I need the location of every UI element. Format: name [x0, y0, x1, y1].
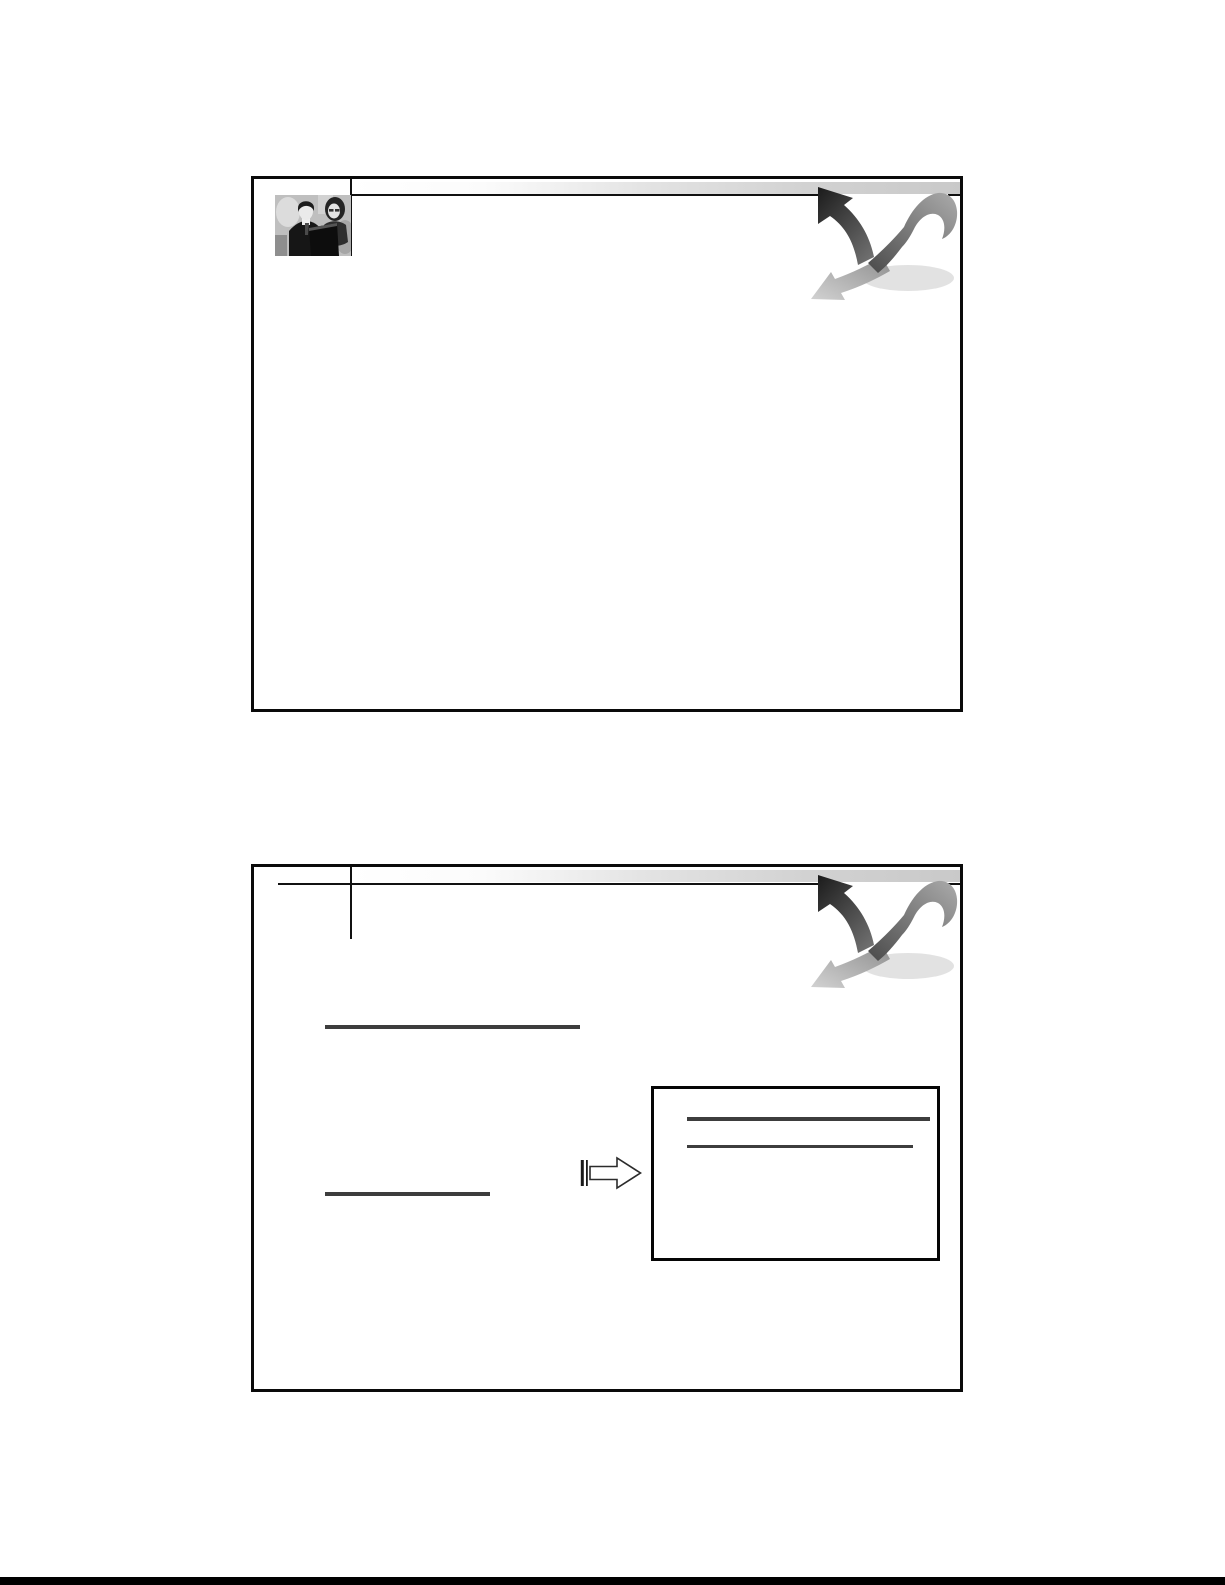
page-bottom-edge-strip [0, 1577, 1225, 1585]
block-arrow-right-icon [580, 1155, 643, 1191]
ribbon-arrows-graphic [808, 869, 958, 999]
header-rule-main [350, 883, 828, 885]
slide-frame-2 [251, 864, 963, 1392]
ribbon-arrows-graphic [808, 181, 958, 311]
box-rule-line-1 [687, 1117, 930, 1121]
slide-frame-1 [251, 176, 963, 712]
header-rule-left-stub [278, 883, 351, 885]
callout-box [651, 1086, 940, 1261]
header-divider-line [350, 867, 352, 939]
blank-underline-long [325, 1025, 580, 1029]
box-rule-line-2 [687, 1145, 913, 1148]
blank-underline-short [325, 1192, 490, 1196]
people-photo [275, 195, 351, 256]
handout-page [0, 0, 1225, 1585]
header-rule-main [350, 194, 828, 196]
